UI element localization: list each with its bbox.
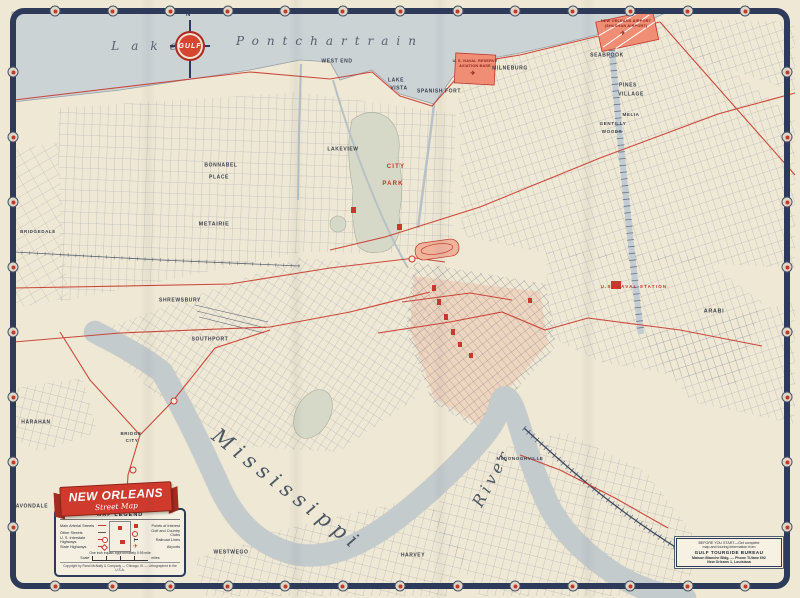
scale-label: Scale bbox=[80, 556, 89, 560]
scale-units: miles bbox=[151, 556, 159, 560]
legend-label: Airports bbox=[142, 545, 180, 549]
compass-north-label: N bbox=[186, 12, 190, 18]
arterial-street-symbol bbox=[98, 523, 106, 529]
title-banner: NEW ORLEANS Street Map bbox=[59, 481, 172, 517]
gulf-disc: GULF bbox=[175, 31, 205, 61]
legend-label: State Highways bbox=[60, 545, 96, 549]
legend-row: U. S. Interstate Highways Railroad Lines bbox=[60, 536, 180, 543]
city-park bbox=[349, 112, 402, 252]
legend-row: State Highways Airports bbox=[60, 543, 180, 550]
tourgide-title: GULF TOURGIDE BUREAU bbox=[680, 550, 778, 555]
tourgide-city: New Orleans 1, Louisiana bbox=[680, 560, 778, 564]
naval-air-base-area bbox=[454, 53, 496, 85]
gulf-brand-name: GULF bbox=[178, 43, 201, 50]
cemeteries bbox=[330, 216, 346, 232]
legend-label: Railroad Lines bbox=[142, 538, 180, 542]
airport-symbol bbox=[132, 544, 140, 550]
legend-label: Points of Interest bbox=[142, 524, 180, 528]
us-highway-symbol bbox=[98, 537, 106, 543]
map-sheet: LakePontchartrainWEST ENDLAKEVISTASPANIS… bbox=[0, 0, 800, 598]
legend-label: Other Streets bbox=[60, 531, 96, 535]
state-highway-symbol bbox=[98, 544, 106, 550]
other-street-symbol bbox=[98, 530, 106, 536]
legend-panel: MAP LEGEND Main Arterial Streets Points … bbox=[54, 508, 186, 577]
point-of-interest-symbol bbox=[132, 523, 140, 529]
scale-bar bbox=[92, 556, 148, 561]
golf-club-symbol bbox=[132, 530, 140, 536]
copyright-line: Copyright by Rand McNally & Company — Ch… bbox=[60, 562, 180, 572]
legend-label: Main Arterial Streets bbox=[60, 524, 96, 528]
gulf-logo-compass: N GULF bbox=[168, 14, 212, 80]
tourgide-intro-2: map and touring information from bbox=[680, 545, 778, 549]
scale-bar-row: Scale miles bbox=[60, 556, 180, 561]
tourgide-bureau-box: BEFORE YOU START—Get complete map and to… bbox=[676, 538, 782, 567]
